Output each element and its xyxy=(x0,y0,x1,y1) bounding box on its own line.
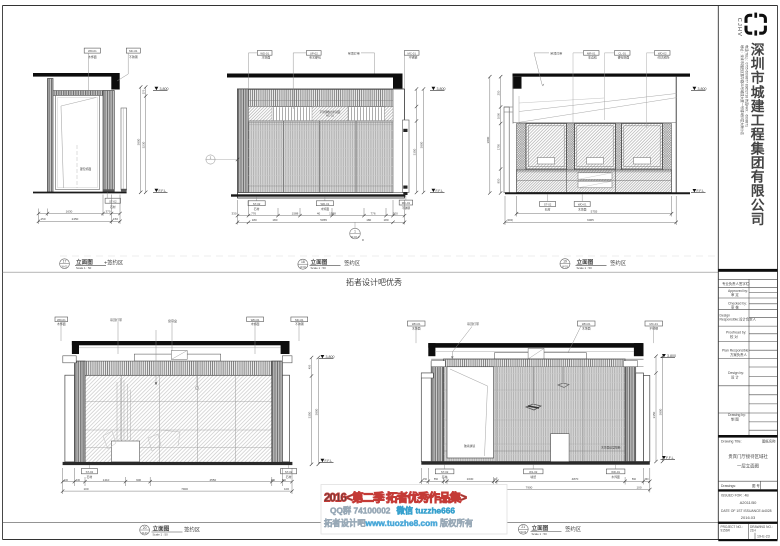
svg-text:3350: 3350 xyxy=(652,411,656,418)
svg-text:MC-01: MC-01 xyxy=(649,322,658,326)
svg-text:3800: 3800 xyxy=(420,141,424,148)
svg-text:450: 450 xyxy=(308,364,312,369)
svg-text:4870: 4870 xyxy=(572,477,579,481)
svg-text:石材: 石材 xyxy=(87,475,93,479)
svg-text:ST-02: ST-02 xyxy=(253,202,261,206)
svg-text:R: R xyxy=(362,238,364,242)
svg-text:Scale 1 : 50: Scale 1 : 50 xyxy=(577,266,593,270)
svg-text:7900: 7900 xyxy=(526,485,533,489)
svg-text:6065: 6065 xyxy=(587,218,594,222)
svg-text:MC-01: MC-01 xyxy=(326,113,334,117)
svg-text:W-03: W-03 xyxy=(520,531,526,534)
svg-text:3.800: 3.800 xyxy=(326,355,335,359)
svg-text:3800: 3800 xyxy=(137,138,141,145)
svg-text:500: 500 xyxy=(393,211,398,215)
svg-text:40: 40 xyxy=(317,211,321,215)
svg-text:设 计: 设 计 xyxy=(731,375,739,380)
svg-text:5055: 5055 xyxy=(320,218,327,222)
svg-text:W-03: W-03 xyxy=(562,266,568,269)
svg-text:Scale 1 : 50: Scale 1 : 50 xyxy=(153,533,169,537)
svg-text:立面图: 立面图 xyxy=(311,258,328,266)
svg-text:ST-02: ST-02 xyxy=(441,470,449,474)
svg-text:方案负责人: 方案负责人 xyxy=(730,352,748,357)
svg-text:木饰面: 木饰面 xyxy=(582,326,591,331)
svg-text:团: 团 xyxy=(751,155,765,170)
svg-text:木饰面造型隔断: 木饰面造型隔断 xyxy=(601,446,621,450)
svg-text:1588: 1588 xyxy=(292,211,299,215)
svg-text:拓者设计吧优秀: 拓者设计吧优秀 xyxy=(346,277,402,287)
svg-text:地址：深圳市福田区振华路21号城建大厦一号楼3栋5层大梅沙店: 地址：深圳市福田区振华路21号城建大厦一号楼3栋5层大梅沙店 xyxy=(740,45,745,135)
svg-text:石材: 石材 xyxy=(254,207,260,211)
svg-text:3230: 3230 xyxy=(142,141,146,148)
svg-text:F.F.L: F.F.L xyxy=(436,189,444,193)
svg-text:布艺硬包: 布艺硬包 xyxy=(309,55,321,60)
svg-text:/仿古铜条: /仿古铜条 xyxy=(657,55,669,60)
svg-text:校 对: 校 对 xyxy=(730,334,738,339)
svg-text:21H: 21H xyxy=(750,529,757,533)
svg-text:墙纸: 墙纸 xyxy=(530,475,536,479)
svg-text:窗帘盒: 窗帘盒 xyxy=(168,318,177,323)
svg-text:19: 19 xyxy=(563,260,567,264)
svg-text:1410: 1410 xyxy=(103,478,110,482)
svg-text:Drawing Title:: Drawing Title: xyxy=(721,440,742,444)
svg-text:1630: 1630 xyxy=(66,209,73,213)
svg-text:玻璃拼镜: 玻璃拼镜 xyxy=(464,444,475,448)
svg-text:1: 1 xyxy=(354,229,356,233)
svg-text:180: 180 xyxy=(272,218,277,222)
svg-text:1000: 1000 xyxy=(497,112,501,119)
svg-text:3800: 3800 xyxy=(659,408,663,415)
svg-text:立面图: 立面图 xyxy=(76,258,93,266)
svg-text:DATE OF 1ST ISSUANCE:A4028: DATE OF 1ST ISSUANCE:A4028 xyxy=(721,509,772,513)
svg-text:MC-01: MC-01 xyxy=(129,49,138,53)
svg-text:木饰面: 木饰面 xyxy=(412,326,421,331)
svg-text:3.800: 3.800 xyxy=(160,87,169,91)
svg-text:硬包饰面: 硬包饰面 xyxy=(80,167,91,171)
svg-text:550: 550 xyxy=(434,478,439,481)
svg-text:吊顶灯带: 吊顶灯带 xyxy=(110,317,122,322)
svg-text:图纸名称: 图纸名称 xyxy=(762,439,776,444)
svg-text:木饰面: 木饰面 xyxy=(611,475,620,479)
svg-text:签约区: 签约区 xyxy=(565,525,582,533)
svg-text:圳: 圳 xyxy=(751,57,765,72)
svg-text:+签约区: +签约区 xyxy=(104,259,124,267)
svg-text:拓者设计吧www.tuozhe8.com 版权所有: 拓者设计吧www.tuozhe8.com 版权所有 xyxy=(324,518,473,528)
svg-text:吊顶灯带: 吊顶灯带 xyxy=(550,50,562,55)
svg-text:MC-01: MC-01 xyxy=(402,201,411,205)
svg-text:立面图: 立面图 xyxy=(153,525,170,533)
svg-text:776: 776 xyxy=(251,211,256,215)
svg-text:18: 18 xyxy=(301,260,305,264)
svg-text:建: 建 xyxy=(751,98,765,114)
svg-text:限: 限 xyxy=(751,184,765,199)
svg-text:180: 180 xyxy=(252,218,257,222)
svg-text:吊顶灯带: 吊顶灯带 xyxy=(467,321,479,326)
svg-text:石材: 石材 xyxy=(442,475,448,479)
svg-text:Scale 1 : 50: Scale 1 : 50 xyxy=(76,266,92,270)
svg-text:签约区: 签约区 xyxy=(610,259,627,267)
svg-text:不锈钢: 不锈钢 xyxy=(402,206,411,210)
svg-text:不锈钢: 不锈钢 xyxy=(409,55,418,60)
svg-text:石材: 石材 xyxy=(286,475,292,479)
svg-text:100: 100 xyxy=(284,487,289,491)
svg-text:木饰面: 木饰面 xyxy=(578,208,587,212)
svg-text:石材: 石材 xyxy=(545,208,551,212)
svg-text:木饰面: 木饰面 xyxy=(321,207,330,211)
svg-text:Design by:: Design by: xyxy=(728,371,744,375)
svg-text:5755: 5755 xyxy=(591,210,598,214)
svg-text:570: 570 xyxy=(142,89,146,94)
svg-text:专业负责人签字栏:: 专业负责人签字栏: xyxy=(722,281,750,286)
svg-text:100: 100 xyxy=(83,487,88,491)
svg-text:签约区: 签约区 xyxy=(344,259,361,267)
svg-text:城: 城 xyxy=(751,84,765,100)
svg-text:W-03: W-03 xyxy=(142,532,148,535)
svg-text:F.F.L: F.F.L xyxy=(666,456,674,460)
svg-text:100: 100 xyxy=(64,479,69,482)
svg-text:公: 公 xyxy=(751,198,765,213)
svg-text:(300): (300) xyxy=(507,218,513,222)
svg-text:20: 20 xyxy=(143,526,147,530)
svg-text:贵宾门厅接待区域社: 贵宾门厅接待区域社 xyxy=(728,453,768,460)
svg-text:280: 280 xyxy=(271,479,276,482)
svg-text:WD-01: WD-01 xyxy=(88,49,97,53)
svg-text:Responsible:设计负责人: Responsible:设计负责人 xyxy=(720,317,757,322)
svg-text:560: 560 xyxy=(632,478,637,481)
svg-text:2450: 2450 xyxy=(72,217,79,221)
svg-text:Drawings:: Drawings: xyxy=(721,484,736,488)
svg-text:一层立面图: 一层立面图 xyxy=(737,463,760,470)
svg-text:850: 850 xyxy=(497,178,501,183)
svg-text:Proofread by:: Proofread by: xyxy=(726,331,746,335)
svg-text:100: 100 xyxy=(636,485,641,489)
svg-text:7900: 7900 xyxy=(181,487,188,491)
svg-text:司: 司 xyxy=(751,212,765,227)
svg-text:Drawing by:: Drawing by: xyxy=(728,413,746,417)
svg-text:W-03,A: W-03,A xyxy=(351,236,360,239)
svg-text:WD-01: WD-01 xyxy=(578,203,587,207)
svg-text:WD-01: WD-01 xyxy=(412,322,421,326)
svg-text:3350: 3350 xyxy=(413,148,417,155)
svg-text:图 号: 图 号 xyxy=(752,483,760,488)
svg-text:3350: 3350 xyxy=(308,411,312,418)
svg-text:180: 180 xyxy=(383,218,388,222)
svg-text:360: 360 xyxy=(282,479,287,482)
svg-text:19-E-23: 19-E-23 xyxy=(757,535,770,539)
svg-text:审 核: 审 核 xyxy=(731,305,739,310)
svg-text:Scale 1 : 50: Scale 1 : 50 xyxy=(311,266,327,270)
svg-text:不锈钢: 不锈钢 xyxy=(129,54,138,59)
svg-text:WD-01: WD-01 xyxy=(582,322,591,326)
svg-text:ST-02: ST-02 xyxy=(109,199,117,203)
svg-text:木饰面: 木饰面 xyxy=(57,321,66,326)
svg-text:150: 150 xyxy=(423,478,428,481)
svg-text:Scale 1 : 50: Scale 1 : 50 xyxy=(532,532,548,536)
svg-text:签约区: 签约区 xyxy=(184,526,201,534)
svg-text:ISSUED FOR : 4B: ISSUED FOR : 4B xyxy=(721,493,749,497)
svg-text:180: 180 xyxy=(366,218,371,222)
svg-text:2016.03: 2016.03 xyxy=(741,515,756,520)
svg-text:W-03: W-03 xyxy=(62,266,68,269)
svg-text:2016<第二季 拓者优秀作品集>: 2016<第二季 拓者优秀作品集> xyxy=(324,491,467,505)
svg-text:3800: 3800 xyxy=(486,136,490,143)
svg-text:车边镜: 车边镜 xyxy=(588,55,597,60)
svg-text:3800: 3800 xyxy=(314,408,318,415)
svg-text:A2011/50: A2011/50 xyxy=(740,500,758,505)
svg-text:CJHV: CJHV xyxy=(736,18,742,37)
svg-text:4550: 4550 xyxy=(209,478,216,482)
svg-text:不锈钢收边条镜面: 不锈钢收边条镜面 xyxy=(320,110,341,114)
svg-text:1750: 1750 xyxy=(497,143,501,150)
svg-text:150: 150 xyxy=(113,217,118,221)
svg-text:150: 150 xyxy=(40,217,45,221)
svg-text:石材: 石材 xyxy=(110,205,116,209)
svg-text:330: 330 xyxy=(231,211,236,215)
svg-text:W-03: W-03 xyxy=(300,266,306,269)
svg-text:WD-01: WD-01 xyxy=(611,470,620,474)
svg-text:1630: 1630 xyxy=(467,477,474,481)
svg-text:3.800: 3.800 xyxy=(698,87,707,91)
svg-text:F.F.L: F.F.L xyxy=(325,459,333,463)
svg-text:360: 360 xyxy=(644,478,649,481)
svg-text:市: 市 xyxy=(751,70,765,86)
svg-text:WD-01: WD-01 xyxy=(321,202,330,206)
svg-text:370: 370 xyxy=(105,209,110,213)
svg-text:3.800: 3.800 xyxy=(667,354,676,358)
svg-text:900: 900 xyxy=(136,478,141,482)
svg-text:330: 330 xyxy=(76,479,81,482)
svg-text:立面图: 立面图 xyxy=(577,258,594,266)
svg-text:21: 21 xyxy=(521,525,525,529)
svg-text:9156R: 9156R xyxy=(721,529,731,533)
svg-text:制 图: 制 图 xyxy=(731,417,739,422)
svg-text:F.F.L: F.F.L xyxy=(697,189,705,193)
svg-text:776: 776 xyxy=(370,211,375,215)
svg-text:Plan Responsible:: Plan Responsible: xyxy=(722,349,749,353)
svg-text:审 定: 审 定 xyxy=(731,292,739,297)
svg-text:17: 17 xyxy=(63,260,67,264)
svg-text:硬包饰面: 硬包饰面 xyxy=(618,55,630,60)
svg-text:程: 程 xyxy=(751,127,765,142)
svg-text:木饰面: 木饰面 xyxy=(262,55,271,60)
svg-text:工: 工 xyxy=(751,113,765,128)
svg-text:木饰面: 木饰面 xyxy=(88,54,97,59)
svg-text:电话(TEL)：0755 6998877 83652718: 电话(TEL)：0755 6998877 83652718 传真FAX：6998… xyxy=(744,45,749,127)
svg-text:深: 深 xyxy=(751,41,765,57)
svg-text:F.F.L: F.F.L xyxy=(159,189,167,193)
svg-text:立面图: 立面图 xyxy=(532,524,549,532)
svg-text:250: 250 xyxy=(497,90,501,95)
svg-text:不锈钢: 不锈钢 xyxy=(295,321,304,326)
svg-text:ST-02: ST-02 xyxy=(86,470,94,474)
svg-text:1588: 1588 xyxy=(329,211,336,215)
svg-text:3.800: 3.800 xyxy=(437,87,446,91)
svg-text:有: 有 xyxy=(751,169,765,185)
svg-text:集: 集 xyxy=(750,140,765,156)
svg-text:吊顶灯带: 吊顶灯带 xyxy=(348,50,360,55)
svg-text:ST-02: ST-02 xyxy=(544,203,552,207)
svg-text:ST-02: ST-02 xyxy=(285,470,293,474)
svg-text:W1-02: W1-02 xyxy=(529,470,538,474)
